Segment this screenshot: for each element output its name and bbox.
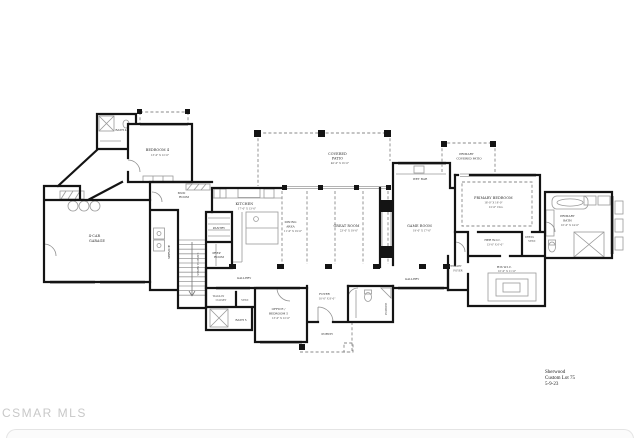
floor-plan-sheet: BATH 4 BEDROOM 4 13'-0" X 12'-6" MUD ROO… — [0, 0, 640, 438]
shower-x — [210, 309, 228, 327]
dryer-door — [157, 244, 161, 248]
label-dims: 13'-0" X 12'-0" — [272, 317, 290, 320]
corner-sink — [381, 288, 391, 298]
patio-column — [384, 130, 391, 137]
label-dims: 17'-0" X 13'-0" — [238, 208, 256, 211]
floor-plan-drawing: BATH 4 BEDROOM 4 13'-0" X 12'-6" MUD ROO… — [0, 0, 640, 438]
label-dims: 13'-0" X 6'-0" — [487, 243, 504, 246]
walls-layer — [44, 114, 612, 342]
label-line: FOYER — [453, 269, 462, 272]
slider-post — [318, 185, 323, 190]
label-line: GAME ROOM — [407, 224, 432, 228]
room-label-primary-foyer: PRIMARY FOYER — [449, 252, 466, 272]
window-planter — [615, 219, 623, 232]
slider-post — [354, 185, 359, 190]
mls-watermark: CSMAR MLS — [2, 406, 87, 420]
room-label-gallery-west: GALLERY — [237, 276, 251, 280]
gallery-column — [325, 264, 332, 269]
label-line: HIS W.I.C. — [497, 265, 512, 269]
room-label-porch: PORCH — [321, 332, 333, 336]
room-label-bath4: BATH 4 — [115, 128, 126, 132]
storage-hatch — [61, 191, 80, 199]
porch-column — [299, 344, 305, 350]
label-line: WALK-IN — [213, 295, 225, 298]
washer-symbol — [154, 228, 165, 239]
washer-door — [157, 232, 161, 236]
room-label-kitchen: KITCHEN 17'-0" X 13'-0" — [236, 190, 259, 211]
label-line: COVERED — [328, 152, 347, 156]
label-line: 4-CAR — [89, 234, 101, 238]
gallery-column — [373, 264, 380, 269]
label-line: BEDROOM 4 — [146, 148, 169, 152]
patio-column — [441, 141, 447, 147]
label-line: GREAT ROOM — [333, 224, 359, 228]
oven-symbol — [264, 189, 274, 198]
entry-column — [137, 109, 142, 114]
label-line: DINING — [284, 220, 297, 224]
toilet-tank — [549, 240, 556, 245]
toilet-symbol — [549, 242, 556, 252]
title-block-date: 5-9-23 — [545, 382, 575, 388]
label-line: FOYER — [319, 292, 330, 296]
patio-column — [490, 141, 496, 147]
room-label-foyer: FOYER 10'-0" X 8'-0" — [319, 280, 336, 301]
label-line: PRIMARY BEDROOM — [474, 196, 513, 200]
label-line: OFFICE / — [272, 307, 286, 311]
patio-column — [254, 130, 261, 137]
closet-island-top — [503, 283, 520, 292]
room-label-primary-bedroom: PRIMARY BEDROOM 18'-0" X 16'-0" 12'-0" C… — [474, 184, 518, 209]
gallery-column — [229, 264, 236, 269]
gallery-column — [419, 264, 426, 269]
shower-x — [99, 116, 114, 131]
label-dims: 16'-0" X 11'-0" — [498, 270, 516, 273]
label-line: PRIMARY — [459, 152, 473, 156]
room-label-great-room: GREAT ROOM 23'-0" X 19'-0" — [333, 212, 364, 233]
sink-basin — [584, 196, 596, 205]
room-label-service: SERVICE — [167, 245, 171, 259]
room-label-dining-area: DINING AREA 11'-0" X 19'-0" — [284, 208, 302, 233]
columns-layer — [137, 109, 496, 350]
gallery-column — [277, 264, 284, 269]
room-label-game-room: GAME ROOM 19'-0" X 17'-0" — [407, 212, 437, 233]
label-line: PRIMARY — [560, 214, 574, 218]
label-line: DRESS — [525, 236, 534, 239]
room-label-office-bedroom5: OFFICE / BEDROOM 5 13'-0" X 12'-0" — [269, 295, 293, 320]
patio-column — [318, 130, 325, 137]
label-line: ROOM — [214, 255, 224, 259]
media-wall-lines — [382, 212, 391, 246]
room-label-stairs: STAIRS TO BSMT. — [197, 252, 200, 275]
closet-island-inner — [496, 279, 528, 296]
fireplace-box — [379, 200, 393, 212]
room-label-vest: VEST. — [240, 299, 249, 302]
room-label-powder: POWDER — [385, 303, 388, 315]
label-line: BEDROOM 5 — [269, 312, 288, 316]
room-label-bedroom4: BEDROOM 4 13'-0" X 12'-6" — [146, 136, 175, 157]
label-line: HER W.I.C. — [484, 238, 500, 242]
label-dims: 10'-0" X 8'-0" — [319, 298, 336, 301]
room-label-bath5: BATH 5 — [235, 318, 246, 322]
closet-island — [488, 273, 536, 301]
stair-direction-arrow — [189, 242, 195, 296]
covered-patio-outline — [258, 133, 390, 186]
slider-post — [282, 185, 287, 190]
dryer-symbol — [154, 240, 165, 251]
room-label-her-wic: HER W.I.C. 13'-0" X 6'-0" — [484, 226, 505, 246]
room-label-covered-patio: COVERED PATIO 40'-0" X 16'-0" — [328, 140, 352, 165]
label-line: BATH — [563, 219, 572, 223]
room-label-walk-in-closet5: WALK-IN CLOSET — [213, 282, 230, 302]
label-line: VEST. — [527, 240, 536, 243]
label-line: ROOM — [179, 195, 189, 199]
room-label-garage: 4-CAR GARAGE — [89, 222, 106, 243]
label-line: KITCHEN — [236, 202, 254, 206]
room-label-gallery-east: GALLERY — [405, 277, 419, 281]
label-line: COVERED PATIO — [456, 157, 482, 161]
door-swing-arcs — [44, 160, 555, 322]
label-dims: 19'-0" X 17'-0" — [413, 230, 431, 233]
covered-entry-outline — [140, 112, 188, 124]
label-dims: 23'-0" X 19'-0" — [340, 230, 358, 233]
entry-column — [185, 109, 190, 114]
sink-symbol — [254, 217, 259, 222]
sink-basin — [598, 196, 610, 205]
label-line: PATIO — [332, 157, 343, 161]
wet-bar-sink — [414, 166, 424, 173]
bottom-panel-edge — [6, 429, 634, 438]
tank-symbol — [90, 201, 100, 211]
slider-post — [386, 185, 391, 190]
window-planter — [615, 237, 623, 250]
shower-x — [574, 232, 604, 257]
title-block: Sherwood Custom Lot 75 5-9-23 — [545, 370, 575, 389]
tank-symbol — [79, 201, 89, 211]
label-dims: 40'-0" X 16'-0" — [331, 162, 349, 165]
room-label-wet-bar: WET BAR — [413, 177, 428, 181]
label-line: AREA — [285, 225, 295, 229]
room-label-pantry: PANTRY — [213, 226, 225, 230]
label-dims: 18'-0" X 16'-0" — [484, 202, 502, 205]
label-dims: 11'-0" X 19'-0" — [284, 230, 302, 233]
tank-symbol — [68, 201, 78, 211]
label-line: GARAGE — [89, 239, 105, 243]
fireplace-box — [379, 246, 393, 258]
label-dims: 16'-0" X 14'-0" — [561, 224, 579, 227]
label-dims: 13'-0" X 12'-6" — [151, 154, 169, 157]
label-dims: 12'-0" CLG. — [489, 206, 504, 209]
window-planter — [615, 201, 623, 214]
label-line: CLOSET — [216, 299, 227, 302]
label-line: PRIMARY — [449, 265, 462, 268]
